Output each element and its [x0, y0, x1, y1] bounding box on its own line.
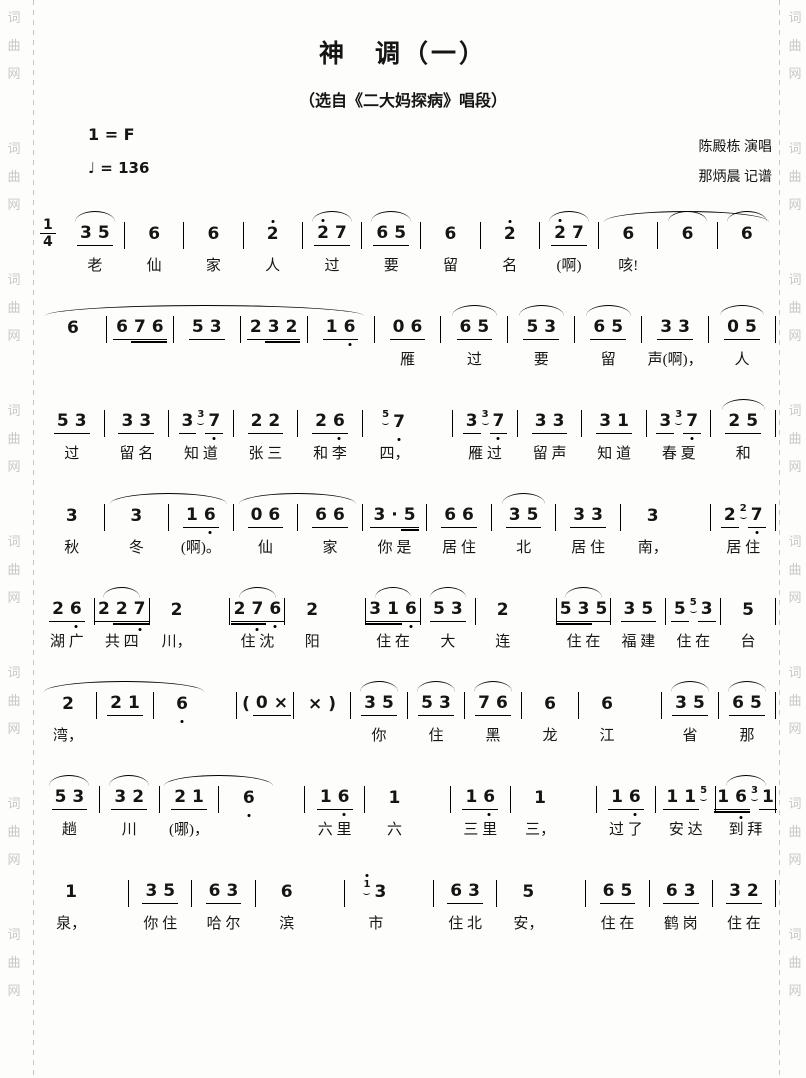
measure: 3冬: [105, 491, 169, 557]
notes-row: 53: [421, 585, 475, 622]
watermark-group: 词曲网: [785, 921, 805, 1005]
tempo-marking: ♩ = 136: [88, 159, 149, 177]
note: 7: [475, 694, 493, 716]
lyric: 阳: [305, 630, 320, 651]
slur-arc: [430, 587, 467, 598]
measure: 6: [718, 209, 776, 275]
slur-arc: [371, 211, 411, 222]
key-tempo-block: 1 = F ♩ = 136: [88, 125, 149, 177]
measure: 316住 在: [366, 585, 420, 651]
lyric: 住 在: [727, 912, 761, 933]
barline: [775, 504, 776, 531]
lyric: 共 四: [105, 630, 139, 651]
lyric: 福 建: [621, 630, 655, 651]
score: 1435老6仙6家2人27过65要6留2名27(啊)6咳!66667653232…: [40, 209, 776, 933]
note: 3: [366, 600, 384, 622]
note: 3: [69, 788, 87, 810]
lyric: 过: [64, 442, 79, 463]
watermark-char: 网: [4, 60, 24, 88]
measure: 6: [658, 209, 716, 275]
octave-dot-low: [488, 813, 491, 816]
score-line: 3秋3冬16(啊)。06仙66家3 ·5你 是66居 住35北33居 住3南，2…: [40, 491, 776, 557]
note: 3: [465, 882, 483, 904]
note: 3: [72, 412, 90, 434]
notes-row: 5: [721, 585, 775, 622]
note: 0: [724, 318, 742, 340]
note: 6: [457, 318, 475, 340]
measure: 276住 沈: [230, 585, 284, 651]
measure: 2名: [481, 209, 539, 275]
note: 6: [493, 694, 511, 716]
lyric: 过: [324, 254, 339, 275]
notes-row: 6: [40, 303, 106, 340]
note: 1: [608, 788, 626, 810]
lyric: 你: [371, 724, 386, 745]
grace-note: 5: [700, 786, 707, 801]
octave-dot-low: [74, 625, 77, 628]
lyric: 秋: [64, 536, 79, 557]
note: 3: [596, 412, 614, 434]
note: 7: [748, 506, 766, 528]
grace-tail: [700, 796, 707, 801]
notes-row: 35: [492, 491, 556, 528]
lyric: 人: [735, 348, 750, 369]
note: 1: [614, 412, 632, 434]
slur-arc: [417, 681, 455, 692]
measure: 27过: [303, 209, 361, 275]
note: ): [325, 695, 339, 716]
note: 5: [743, 412, 761, 434]
lyric: 你 是: [378, 536, 412, 557]
octave-dot-low: [181, 720, 184, 723]
lyric: 三 里: [463, 818, 497, 839]
measure: 2阳: [285, 585, 339, 651]
score-line: 53趟32川21(哪)，616六 里1六16三 里1三，16过 了115安 达1…: [40, 773, 776, 839]
grace-tail: [675, 420, 682, 425]
measure: 16六 里: [305, 773, 364, 839]
note: 6: [663, 882, 681, 904]
note: 5: [671, 600, 689, 622]
notes-row: 6: [718, 209, 776, 246]
notes-row: 32: [713, 867, 775, 904]
measure: 6滨: [256, 867, 318, 933]
notes-row: (0×: [237, 679, 293, 716]
slur-arc: [549, 211, 589, 222]
slur-arc: [239, 587, 276, 598]
slur-arc: [452, 305, 497, 316]
note: 7: [131, 600, 149, 622]
measure: 63住 北: [434, 867, 496, 933]
grace-note: 5: [690, 598, 697, 613]
watermark-char: 词: [785, 135, 805, 163]
measure: 57四，: [363, 397, 427, 463]
notes-row: 227: [711, 491, 775, 528]
notes-row: 57: [363, 397, 427, 434]
lyric: 北: [516, 536, 531, 557]
measure: 337知 道: [169, 397, 233, 463]
watermark-char: 网: [785, 322, 805, 350]
notes-row: 21: [160, 773, 219, 810]
notes-row: 35: [129, 867, 191, 904]
note: 5: [189, 318, 207, 340]
lyric: 泉，: [56, 912, 86, 933]
lyric: 春 夏: [662, 442, 696, 463]
measure: 337春 夏: [647, 397, 711, 463]
measure: 676: [107, 303, 173, 369]
watermark-char: 网: [785, 191, 805, 219]
lyric: 大: [440, 630, 455, 651]
notes-row: 27: [540, 209, 598, 246]
watermark-char: 曲: [785, 32, 805, 60]
note: 1: [62, 883, 80, 904]
right-edge-dashed-line: [779, 0, 780, 1078]
measure: 16三 里: [451, 773, 510, 839]
notes-row: 2: [476, 585, 530, 622]
notes-row: 6: [219, 773, 278, 810]
lyric: 咳!: [618, 254, 638, 275]
measure: 6: [40, 303, 106, 369]
lyric: 雁: [400, 348, 415, 369]
note: 2: [725, 412, 743, 434]
note: 3: [550, 412, 568, 434]
watermark-group: 词曲网: [4, 921, 24, 1005]
lyric: 住 在: [676, 630, 710, 651]
note: 5: [690, 694, 708, 716]
note: 3: [726, 882, 744, 904]
watermark-char: 网: [4, 715, 24, 743]
slur-arc: [109, 775, 149, 786]
note: 6: [240, 789, 258, 810]
notes-row: 1: [511, 773, 570, 810]
octave-dot-low: [348, 343, 351, 346]
page-title: 神 调（一）: [0, 34, 806, 70]
note: 1: [462, 788, 480, 810]
watermark-char: 词: [4, 790, 24, 818]
notes-row: 16: [305, 773, 364, 810]
measure: 3 ·5你 是: [363, 491, 427, 557]
lyric: 仙: [258, 536, 273, 557]
lyric: 黑: [485, 724, 500, 745]
lyric: 留: [443, 254, 458, 275]
notes-row: 76: [465, 679, 521, 716]
score-line: 6676532321606雁65过53要65留33声(啊)，05人: [40, 303, 776, 369]
notes-row: 3: [621, 491, 685, 528]
notes-row: 65: [586, 867, 648, 904]
watermark-group: 词曲网: [4, 659, 24, 743]
notes-row: 2: [150, 585, 204, 622]
octave-dot-low: [755, 531, 758, 534]
note: 6: [442, 225, 460, 246]
measure: 6: [219, 773, 278, 839]
lyric: 留: [601, 348, 616, 369]
notes-row: 35: [662, 679, 718, 716]
note: 2: [303, 601, 321, 622]
slur-arc: [668, 211, 708, 222]
note: 2: [264, 225, 282, 246]
lyric: 家: [322, 536, 337, 557]
notes-row: 337: [453, 397, 517, 434]
octave-dot-low: [274, 625, 277, 628]
note: 5: [557, 600, 575, 622]
notes-row: 676: [107, 303, 173, 340]
octave-dot-low: [691, 437, 694, 440]
note: 6: [729, 694, 747, 716]
note: 2: [168, 601, 186, 622]
watermark-char: 词: [4, 135, 24, 163]
measure: 13市: [345, 867, 407, 933]
note: 1: [714, 788, 732, 810]
grace-note: 1: [363, 880, 370, 895]
note: 2: [247, 318, 265, 340]
note: 6: [330, 412, 348, 434]
note: 3: [463, 412, 481, 434]
notes-row: 6: [658, 209, 716, 246]
measure: 66家: [298, 491, 362, 557]
lyric: 市: [368, 912, 383, 933]
note: 1: [125, 694, 143, 716]
measure: 63哈 尔: [192, 867, 254, 933]
note: 2: [721, 506, 739, 528]
note: 0: [253, 694, 271, 716]
note: 3: [448, 600, 466, 622]
notes-row: 2: [244, 209, 302, 246]
note: 7: [490, 412, 508, 434]
note: 7: [390, 413, 408, 434]
note: 6: [204, 225, 222, 246]
note: 2: [107, 694, 125, 716]
note: 6: [738, 225, 756, 246]
subtitle: （选自《二大妈探病》唱段）: [0, 87, 806, 111]
note: 6: [266, 600, 284, 622]
watermark-char: 词: [785, 4, 805, 32]
left-edge-dashed-line: [33, 0, 34, 1078]
note: 5: [379, 694, 397, 716]
measure: 6仙: [125, 209, 183, 275]
watermark-group: 词曲网: [785, 659, 805, 743]
measure: 6留: [421, 209, 479, 275]
measure: 2连: [476, 585, 530, 651]
watermark-char: 网: [785, 453, 805, 481]
watermark-group: 词曲网: [4, 528, 24, 612]
measure: 232: [241, 303, 307, 369]
note: 5: [608, 318, 626, 340]
score-line: 2湾，216(0××)35你53住76黑6龙6江35省65那: [40, 679, 776, 745]
watermark-char: 网: [785, 60, 805, 88]
grace-tail: [363, 890, 370, 895]
measure: 05人: [709, 303, 775, 369]
notes-row: 63: [192, 867, 254, 904]
watermark-char: 词: [785, 921, 805, 949]
note: 6: [312, 506, 330, 528]
note: 6: [341, 318, 359, 340]
note: 6: [407, 318, 425, 340]
lyric: 要: [534, 348, 549, 369]
note: 6: [335, 788, 353, 810]
lyric: 居 住: [726, 536, 760, 557]
lyric: 人: [265, 254, 280, 275]
lyric: 台: [741, 630, 756, 651]
measure: 33声(啊)，: [642, 303, 708, 369]
watermark-group: 词曲网: [785, 266, 805, 350]
measure: 32住 在: [713, 867, 775, 933]
slur-arc: [728, 681, 766, 692]
note: 5: [739, 601, 757, 622]
measure: 33居 住: [556, 491, 620, 557]
lyric: 雁 过: [468, 442, 502, 463]
grace-note: 3: [675, 410, 682, 425]
measure: 35省: [662, 679, 718, 745]
note: 2: [59, 695, 77, 716]
lyric: 冬: [129, 536, 144, 557]
note: 2: [551, 224, 569, 246]
measure: 06仙: [234, 491, 298, 557]
watermark-char: 词: [785, 397, 805, 425]
notes-row: 33: [642, 303, 708, 340]
lyric: 三，: [525, 818, 555, 839]
octave-dot-high: [322, 219, 325, 222]
watermark-group: 词曲网: [4, 4, 24, 88]
notes-row: 06: [234, 491, 298, 528]
note: 6: [402, 600, 420, 622]
slur-arc: [502, 493, 545, 504]
lyric: 过 了: [609, 818, 643, 839]
watermark-char: 词: [4, 266, 24, 294]
note: 3: [207, 318, 225, 340]
octave-dot-low: [409, 625, 412, 628]
note: 3: [570, 506, 588, 528]
notes-row: 53: [40, 773, 99, 810]
watermark-char: 词: [785, 790, 805, 818]
note: 6: [590, 318, 608, 340]
lyric: 龙: [542, 724, 557, 745]
measure: 35你 住: [129, 867, 191, 933]
note: 5: [523, 318, 541, 340]
note: 3: [698, 600, 716, 622]
meta-row: 1 = F ♩ = 136 陈殿栋 演唱 那炳晨 记谱: [88, 125, 772, 193]
measure: 65那: [719, 679, 775, 745]
notes-row: 6: [184, 209, 242, 246]
octave-dot-high: [365, 874, 368, 877]
notes-row: 26: [298, 397, 362, 434]
watermark-group: 词曲网: [785, 4, 805, 88]
measure: 16过 了: [597, 773, 656, 839]
note: 6: [619, 225, 637, 246]
note: 2: [314, 224, 332, 246]
note: 3: [371, 883, 389, 904]
barline: [775, 598, 776, 625]
watermark-char: 曲: [785, 818, 805, 846]
lyric: (哪)，: [169, 818, 209, 839]
watermark-char: 词: [4, 528, 24, 556]
note: 6: [265, 506, 283, 528]
notes-row: 05: [709, 303, 775, 340]
notes-row: 115: [656, 773, 715, 810]
slur-arc: [726, 775, 766, 786]
notes-row: 2: [481, 209, 539, 246]
measure: 65要: [362, 209, 420, 275]
lyric: 住 在: [567, 630, 601, 651]
measure: 6家: [184, 209, 242, 275]
measure: 337雁 过: [453, 397, 517, 463]
note: 3: [644, 507, 662, 528]
lyric: 住: [428, 724, 443, 745]
note: ×: [271, 694, 291, 716]
measure: 25和: [711, 397, 775, 463]
note: 6: [459, 506, 477, 528]
note: 5: [638, 600, 656, 622]
lyric: 仙: [147, 254, 162, 275]
lyric: 川: [122, 818, 137, 839]
note: 5: [592, 600, 610, 622]
slur-arc: [722, 399, 765, 410]
watermark-char: 词: [785, 528, 805, 556]
watermark-right: 词曲网词曲网词曲网词曲网词曲网词曲网词曲网词曲网: [785, 4, 805, 1052]
score-line: 26湖 广227共 四2川，276住 沈2阳316住 在53大2连535住 在3…: [40, 585, 776, 651]
score-line: 1435老6仙6家2人27过65要6留2名27(啊)6咳!66: [40, 209, 776, 275]
barline: [775, 410, 776, 437]
slur-arc: [312, 211, 352, 222]
measure: 76黑: [465, 679, 521, 745]
watermark-group: 词曲网: [4, 266, 24, 350]
lyric: 哈 尔: [207, 912, 241, 933]
lyric: 老: [87, 254, 102, 275]
watermark-char: 曲: [4, 949, 24, 977]
grace-tail: [382, 420, 389, 425]
grace-note: 3: [751, 786, 758, 801]
notes-row: 66: [298, 491, 362, 528]
measure: 21: [97, 679, 153, 745]
note: 3: [361, 694, 379, 716]
notes-row: 53: [174, 303, 240, 340]
credits: 陈殿栋 演唱 那炳晨 记谱: [699, 133, 773, 193]
note: 1: [189, 788, 207, 810]
slur-arc: [671, 681, 709, 692]
note: 6: [480, 788, 498, 810]
lyric: 名: [502, 254, 517, 275]
measure: 21(哪)，: [160, 773, 219, 839]
notes-row: 1: [40, 867, 102, 904]
note: 5: [618, 882, 636, 904]
lyric: 住 沈: [241, 630, 275, 651]
measure: 27(啊): [540, 209, 598, 275]
octave-dot-low: [138, 628, 141, 631]
watermark-char: 网: [785, 715, 805, 743]
lyric: 安，: [513, 912, 543, 933]
notes-row: 276: [230, 585, 284, 622]
note: 5: [430, 600, 448, 622]
slur-arc: [565, 587, 602, 598]
note: 3: [265, 318, 283, 340]
measure: 1泉，: [40, 867, 102, 933]
watermark-char: 曲: [785, 425, 805, 453]
measure: 1六: [365, 773, 424, 839]
note: 6: [732, 788, 750, 810]
notes-row: 316: [366, 585, 420, 622]
notes-row: ×): [294, 679, 350, 716]
note: 6: [149, 318, 167, 340]
lyric: 六 里: [318, 818, 352, 839]
measure: 35福 建: [611, 585, 665, 651]
watermark-char: 曲: [4, 425, 24, 453]
note: 6: [64, 319, 82, 340]
notes-row: 6: [522, 679, 578, 716]
lyric: 和 李: [313, 442, 347, 463]
grace-tail: [751, 796, 758, 801]
measure: 2湾，: [40, 679, 96, 745]
notes-row: 16: [169, 491, 233, 528]
notes-row: 6: [421, 209, 479, 246]
measure: (0×: [237, 679, 293, 745]
